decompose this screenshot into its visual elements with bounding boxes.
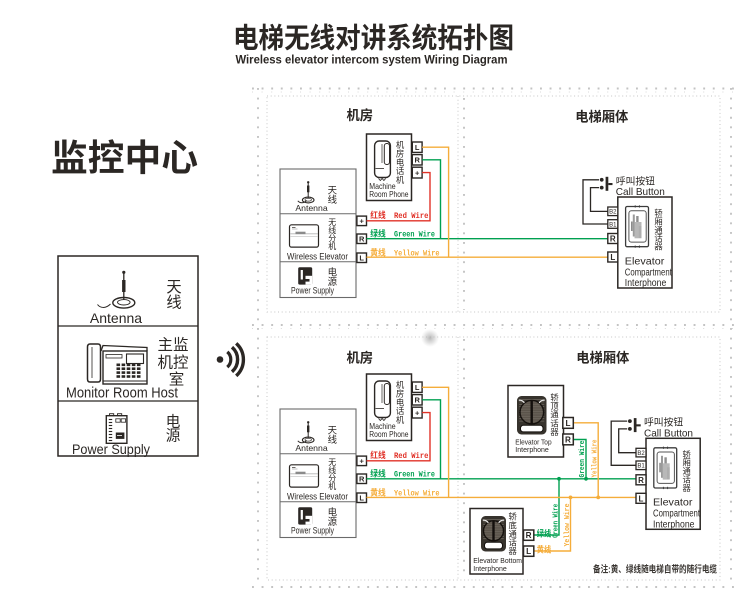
svg-text:红线: 红线 [370,449,386,461]
svg-text:L: L [565,419,570,428]
svg-text:L: L [415,383,420,392]
svg-text:Yellow Wire: Yellow Wire [592,439,600,477]
svg-text:Compartment: Compartment [625,267,672,278]
svg-text:L: L [639,494,644,503]
svg-text:R: R [565,436,571,445]
svg-text:呼叫按钮: 呼叫按钮 [644,415,683,429]
svg-text:Power Supply: Power Supply [72,441,150,457]
svg-text:电梯无线对讲系统拓扑图: 电梯无线对讲系统拓扑图 [233,17,514,57]
svg-text:机房: 机房 [347,346,374,366]
svg-text:R: R [610,235,616,244]
svg-text:Elevator: Elevator [625,256,665,267]
svg-text:Wireless elevator intercom sys: Wireless elevator intercom system Wiring… [236,53,508,67]
svg-text:Room Phone: Room Phone [369,429,409,439]
svg-text:+: + [360,217,365,226]
svg-text:L: L [359,254,364,263]
svg-text:Green Wire: Green Wire [552,503,560,537]
svg-text:线: 线 [328,192,338,206]
svg-text:+: + [415,168,420,177]
svg-text:器: 器 [683,482,692,494]
svg-text:机: 机 [396,414,405,426]
svg-text:绿线: 绿线 [537,528,552,540]
svg-text:机: 机 [396,174,405,186]
svg-text:Yellow Wire: Yellow Wire [564,503,572,546]
svg-text:源: 源 [166,424,181,445]
svg-text:L: L [359,494,364,503]
svg-text:Interphone: Interphone [653,520,695,531]
svg-text:Interphone: Interphone [473,564,507,573]
svg-text:L: L [415,143,420,152]
svg-text:呼叫按钮: 呼叫按钮 [616,173,655,187]
svg-text:红线: 红线 [370,209,386,221]
svg-text:Interphone: Interphone [515,445,549,454]
svg-text:备注:黄、绿线随电梯自带的随行电缆: 备注:黄、绿线随电梯自带的随行电缆 [593,562,718,576]
svg-text:L: L [610,253,615,262]
svg-text:电梯厢体: 电梯厢体 [575,105,629,125]
svg-text:R: R [414,396,420,405]
svg-text:R: R [359,235,365,244]
svg-text:监控中心: 监控中心 [51,129,198,182]
svg-text:黄线: 黄线 [537,544,552,556]
svg-text:室: 室 [169,367,185,389]
svg-text:Red Wire: Red Wire [394,451,429,461]
svg-text:B2: B2 [609,210,617,216]
svg-text:Monitor Room Host: Monitor Room Host [66,385,178,401]
svg-text:线: 线 [166,291,181,313]
svg-text:Antenna: Antenna [295,203,328,213]
svg-text:器: 器 [550,426,559,438]
svg-text:黄线: 黄线 [370,486,386,498]
svg-text:L: L [526,547,531,556]
svg-text:+: + [360,457,365,466]
svg-text:R: R [414,156,420,165]
svg-text:绿线: 绿线 [370,228,386,240]
svg-text:绿线: 绿线 [370,468,386,480]
svg-text:Antenna: Antenna [90,310,142,326]
svg-text:Room Phone: Room Phone [369,189,409,199]
svg-text:机房: 机房 [347,104,374,124]
svg-text:机: 机 [328,241,336,252]
svg-text:电梯厢体: 电梯厢体 [576,346,630,366]
svg-text:Green Wire: Green Wire [579,440,587,477]
svg-text:B1: B1 [637,464,645,470]
svg-text:Red Wire: Red Wire [394,211,429,221]
svg-text:Wireless Elevator: Wireless Elevator [287,491,348,501]
svg-text:B1: B1 [609,222,617,228]
svg-text:线: 线 [328,432,338,446]
svg-text:Elevator: Elevator [653,498,693,509]
svg-text:Wireless Elevator: Wireless Elevator [287,251,348,261]
svg-text:Antenna: Antenna [295,443,328,453]
svg-text:B2: B2 [637,451,645,457]
svg-text:源: 源 [328,274,338,288]
svg-text:R: R [638,476,644,485]
svg-text:源: 源 [328,514,338,528]
svg-text:Compartment: Compartment [653,509,700,520]
svg-text:机: 机 [328,481,336,492]
svg-text:Interphone: Interphone [625,278,667,289]
svg-text:R: R [359,475,365,484]
svg-text:器: 器 [654,241,663,253]
svg-text:R: R [526,531,532,540]
svg-text:+: + [415,408,420,417]
